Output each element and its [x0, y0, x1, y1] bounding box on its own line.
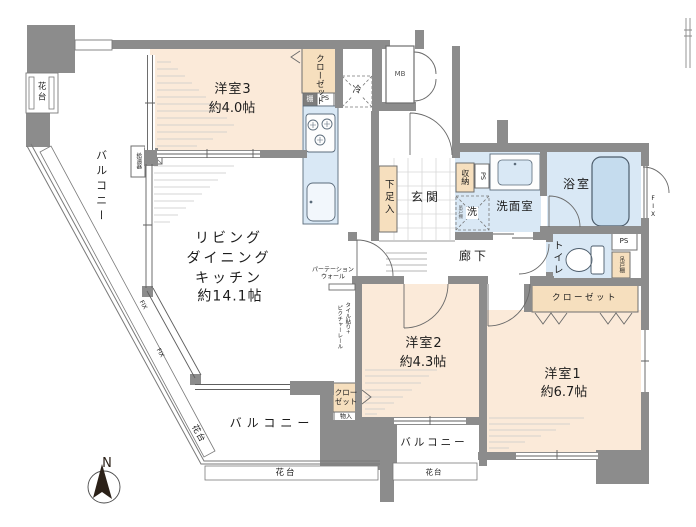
tile-rail-note-right: タイル貼り+ [344, 302, 351, 334]
ps-label-1: PS [321, 95, 329, 103]
north-label: N [102, 456, 112, 472]
ps-label-2: PS [478, 172, 486, 180]
floor-plan-drawing [0, 0, 696, 527]
ldk-label-line3: キッチン [195, 271, 263, 288]
bathtub [592, 157, 629, 226]
closet2-label: クローゼット [333, 388, 359, 406]
water-heater-label: 給湯器 [135, 153, 142, 170]
ps-label-3: PS [620, 237, 629, 245]
room1-size-label: 約6.7帖 [541, 385, 588, 401]
room3-name-label: 洋室3 [214, 82, 251, 98]
kitchen-counter [303, 106, 338, 224]
toilet-label: トイレ [550, 240, 562, 276]
balcony-bottom-center-label: バルコニー [400, 437, 467, 450]
flower-stand-left-label: 花台 [36, 82, 46, 103]
ldk-size-label: 約14.1帖 [197, 289, 262, 306]
small-storage-label: 物入 [340, 413, 352, 420]
balcony-bottom-left-label: バルコニー [230, 416, 315, 430]
closet3-label: クローゼット [313, 54, 326, 86]
partition-note-line2: ウォール [321, 273, 345, 280]
genkan-label: 玄関 [411, 190, 441, 204]
refrigerator-label: 冷 [351, 86, 362, 97]
room2-name-label: 洋室2 [405, 336, 442, 352]
washer-label: 洗 [466, 207, 478, 219]
meter-box-label: MB [395, 70, 406, 78]
ldk-label-line2: ダイニング [187, 251, 272, 268]
shoe-box-label: 下足入 [382, 179, 393, 217]
washstand [490, 154, 540, 190]
closet1-label: クローゼット [552, 293, 618, 303]
flower-stand-bottom-left-label: 花台 [275, 468, 296, 478]
hanging-cupboard-label-1: 吊戸棚 [457, 205, 462, 219]
ldk-label-line1: リビング [195, 231, 263, 248]
fix-label-bath: FIX [649, 195, 656, 219]
floor-plan: 洋室3 約4.0帖 リビング ダイニング キッチン 約14.1帖 洋室2 約4.… [0, 0, 696, 527]
washroom-label: 洗面室 [496, 200, 534, 214]
corridor-label: 廊下 [459, 249, 489, 263]
room2-size-label: 約4.3帖 [400, 355, 447, 371]
bathroom-label: 浴室 [563, 177, 591, 191]
partition-wall [329, 284, 355, 290]
tile-rail-note-left: ピクチャーレール [336, 305, 343, 349]
hanging-cupboard-label-2: 吊戸棚 [618, 257, 625, 274]
room3-size-label: 約4.0帖 [209, 101, 256, 117]
toilet [566, 246, 604, 274]
flower-stand-bottom-center-label: 花台 [426, 468, 443, 477]
storage-box-label: 収納 [460, 169, 470, 185]
step-lines [379, 241, 455, 277]
room1-name-label: 洋室1 [544, 367, 581, 383]
shelf-label: 棚 [307, 95, 314, 103]
neighbor-structure [684, 18, 692, 68]
balcony-left-label: バルコニー [94, 150, 107, 225]
